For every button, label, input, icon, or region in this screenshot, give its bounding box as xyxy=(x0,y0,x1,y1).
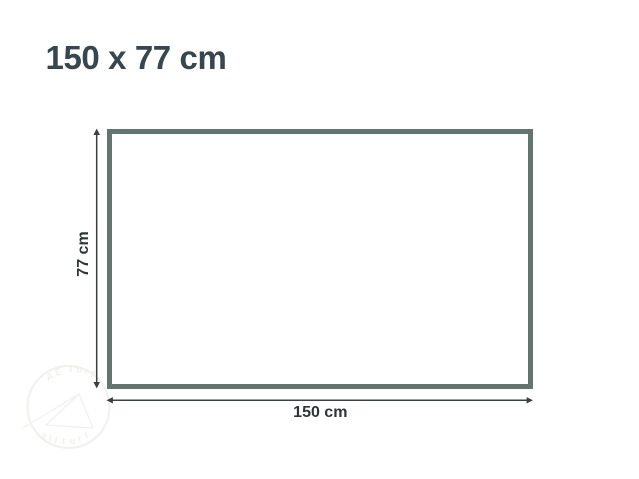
svg-text:r: r xyxy=(77,433,84,445)
svg-text:l: l xyxy=(47,433,53,444)
svg-text:u: u xyxy=(69,435,76,447)
svg-text:l: l xyxy=(53,435,58,446)
svg-text:T: T xyxy=(68,364,74,375)
svg-text:f: f xyxy=(89,369,97,381)
svg-text:u: u xyxy=(76,364,83,376)
svg-text:A: A xyxy=(44,371,55,384)
svg-text:f: f xyxy=(83,430,91,442)
svg-text:E: E xyxy=(54,367,63,379)
svg-text:t: t xyxy=(62,436,66,447)
